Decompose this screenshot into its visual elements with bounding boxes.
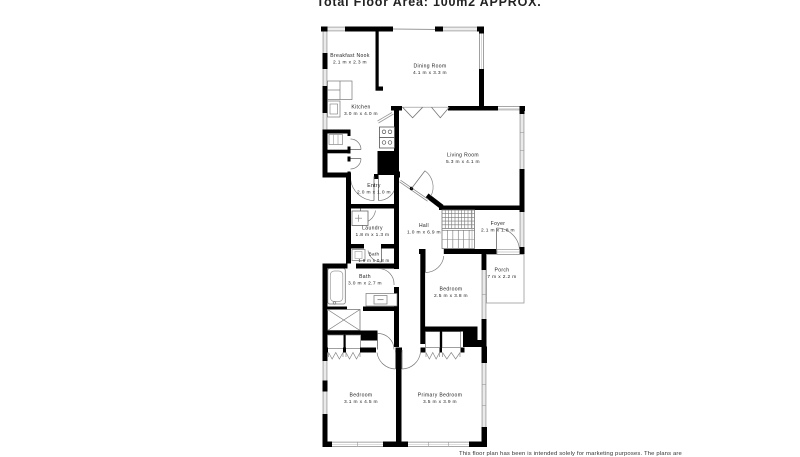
- svg-text:Bath: Bath: [369, 252, 380, 257]
- svg-text:Foyer: Foyer: [491, 221, 506, 227]
- svg-text:2.1 m x 2.3 m: 2.1 m x 2.3 m: [333, 60, 367, 66]
- svg-text:3.0 m x 4.0 m: 3.0 m x 4.0 m: [344, 111, 378, 117]
- svg-text:1.8 m x 0.8 m: 1.8 m x 0.8 m: [358, 258, 389, 263]
- svg-text:Kitchen: Kitchen: [351, 105, 370, 111]
- svg-text:4.1 m x 3.3 m: 4.1 m x 3.3 m: [413, 70, 447, 76]
- svg-text:Bedroom: Bedroom: [350, 393, 373, 399]
- svg-text:1.8 m x 1.3 m: 1.8 m x 1.3 m: [356, 232, 390, 238]
- svg-text:5.3 m x 4.1 m: 5.3 m x 4.1 m: [446, 159, 480, 165]
- svg-text:2.1 m x 1.8 m: 2.1 m x 1.8 m: [481, 228, 515, 234]
- svg-text:Breakfast Nook: Breakfast Nook: [330, 53, 370, 59]
- svg-text:7 m x 2.2 m: 7 m x 2.2 m: [487, 274, 516, 280]
- svg-text:Dining Room: Dining Room: [413, 64, 446, 70]
- svg-text:3.0 m x 2.7 m: 3.0 m x 2.7 m: [348, 281, 382, 287]
- svg-text:Entry: Entry: [367, 183, 381, 189]
- svg-text:Porch: Porch: [495, 268, 510, 274]
- svg-text:3.1 m x 4.5 m: 3.1 m x 4.5 m: [344, 399, 378, 405]
- svg-text:Hall: Hall: [419, 223, 429, 229]
- svg-text:Bath: Bath: [359, 274, 371, 280]
- svg-text:2.0 m x 1.0 m: 2.0 m x 1.0 m: [357, 190, 391, 196]
- svg-text:Primary Bedroom: Primary Bedroom: [418, 393, 463, 399]
- svg-text:Bedroom: Bedroom: [440, 287, 463, 293]
- svg-text:1.0 m x 6.9 m: 1.0 m x 6.9 m: [407, 230, 441, 236]
- svg-text:3.5 m x 3.9 m: 3.5 m x 3.9 m: [423, 399, 457, 405]
- svg-text:Laundry: Laundry: [362, 226, 383, 232]
- svg-text:Living Room: Living Room: [447, 153, 479, 159]
- svg-text:2.5 m x 3.8 m: 2.5 m x 3.8 m: [434, 293, 468, 299]
